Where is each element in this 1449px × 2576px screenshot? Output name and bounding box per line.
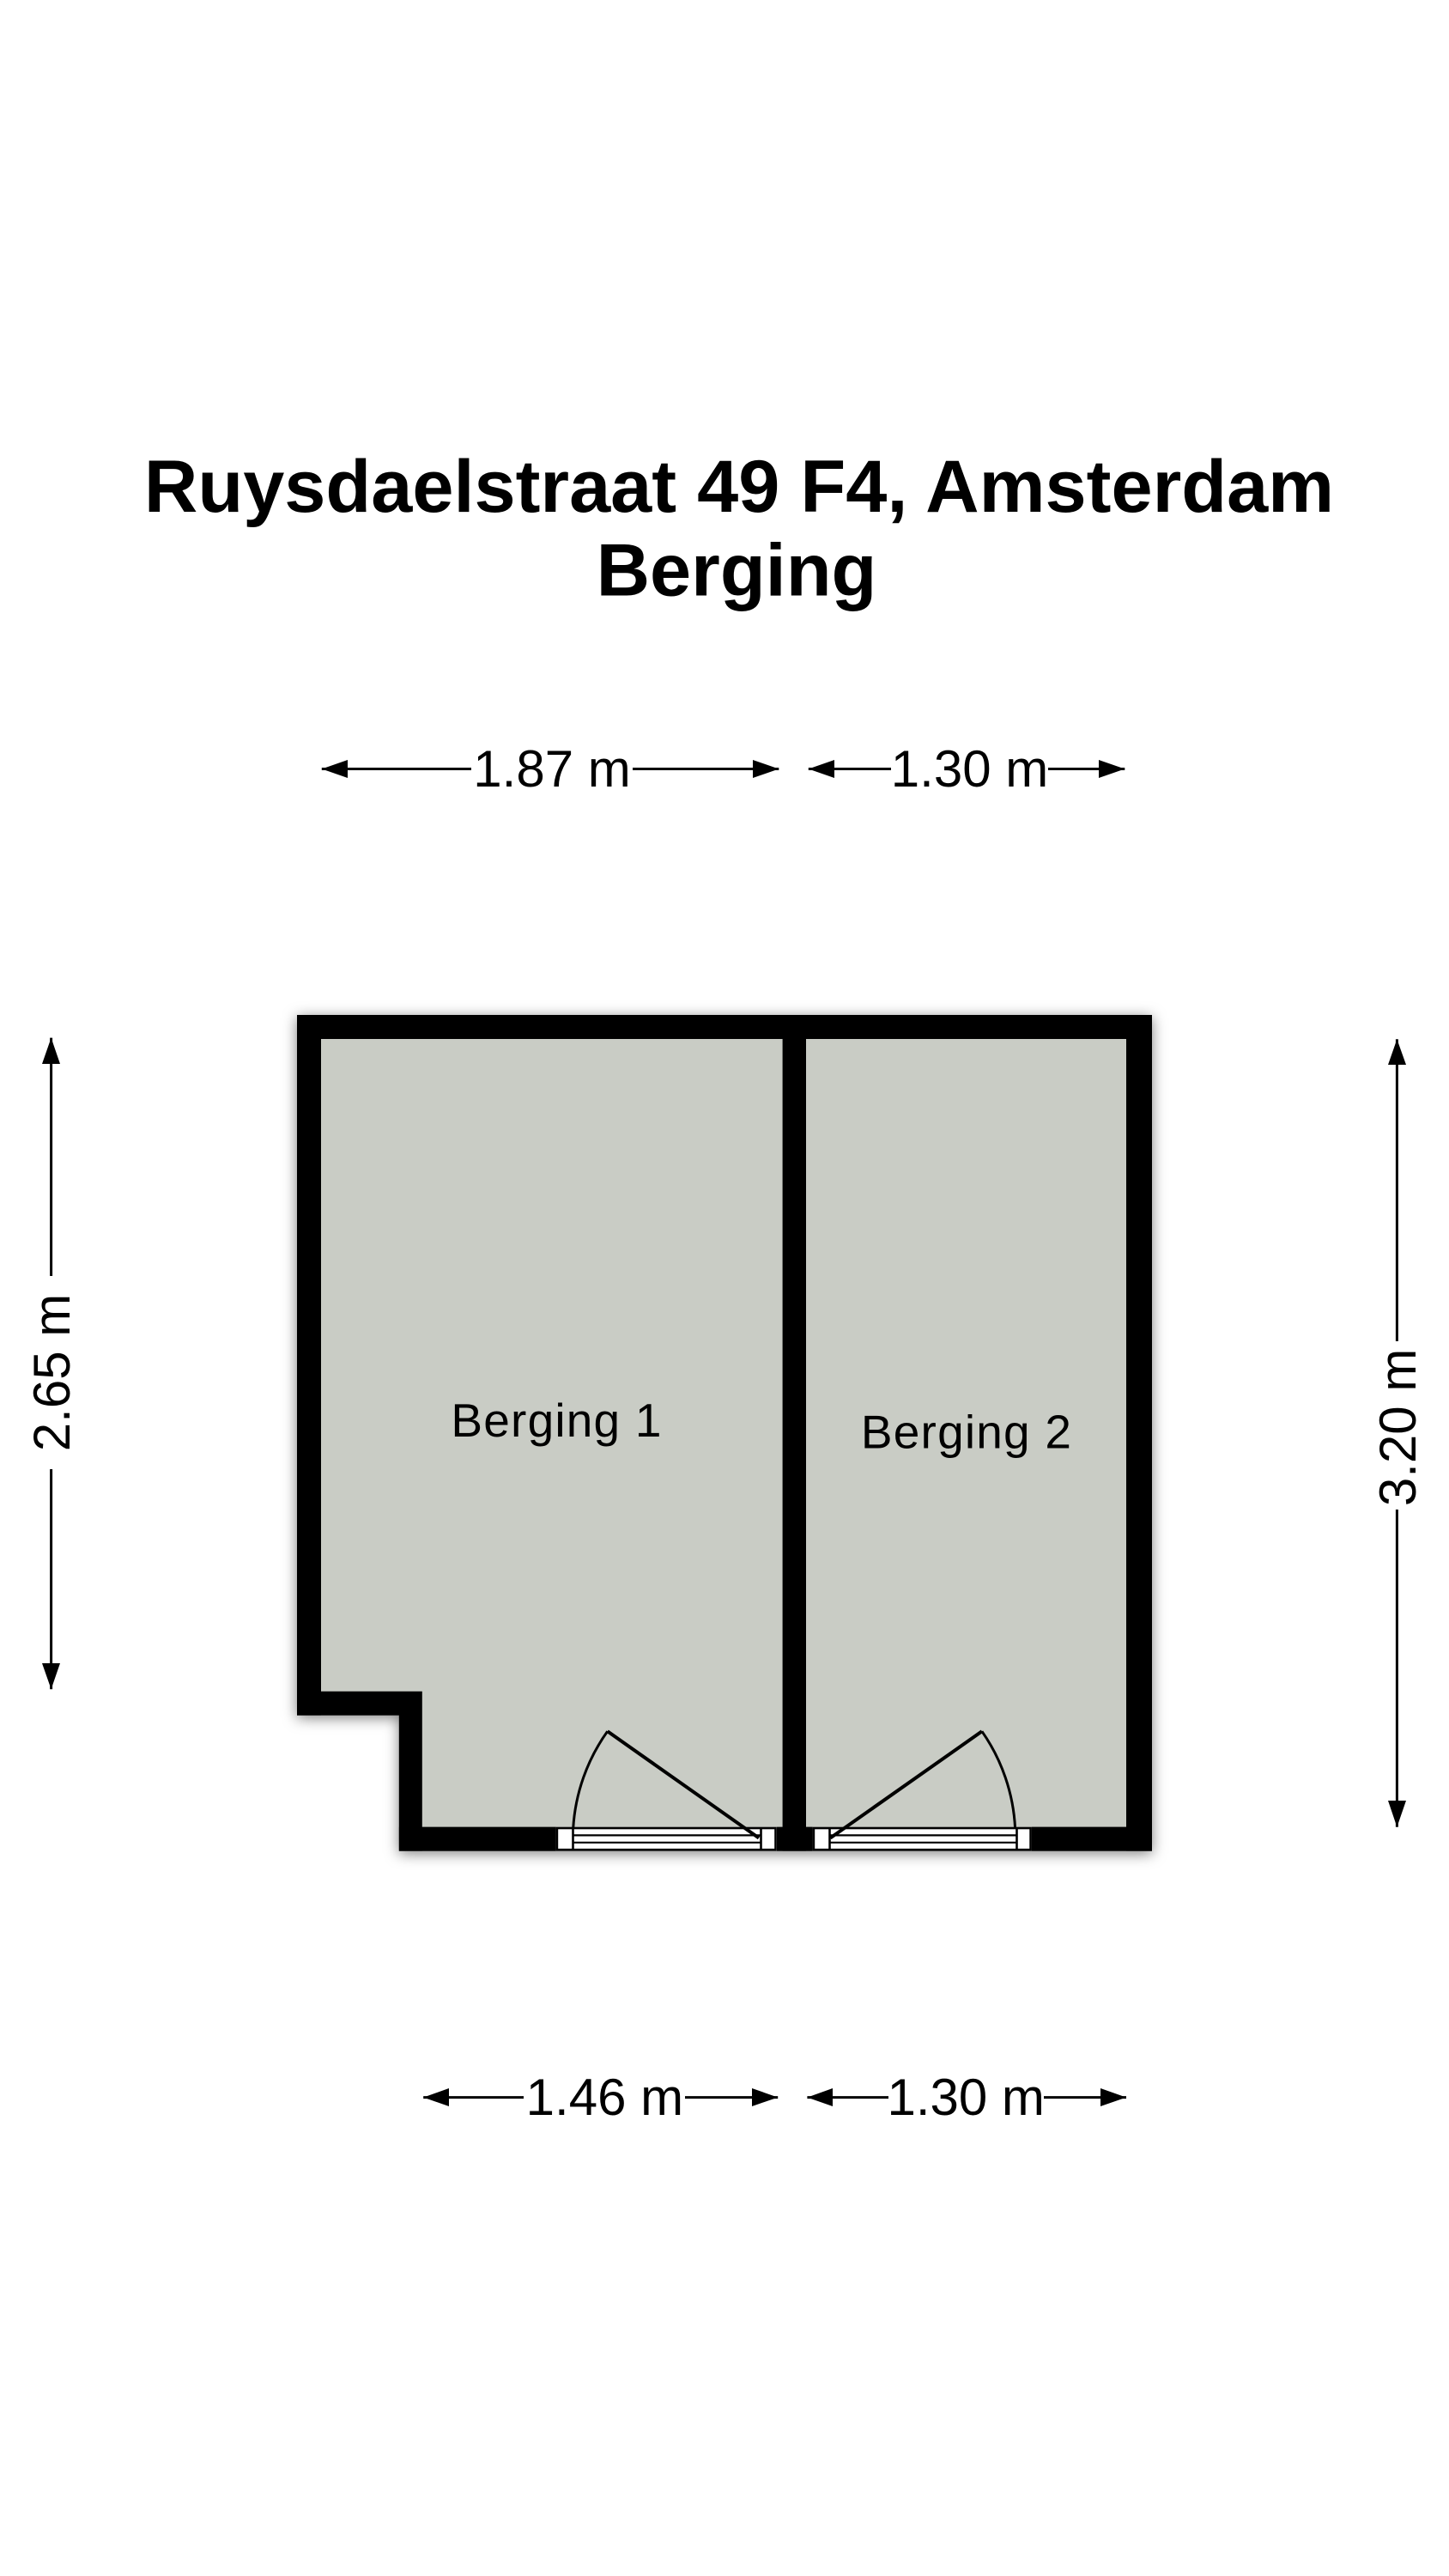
svg-text:Berging: Berging <box>597 530 877 612</box>
svg-text:Berging 2: Berging 2 <box>861 1405 1072 1458</box>
svg-text:1.87 m: 1.87 m <box>473 740 630 798</box>
svg-text:1.30 m: 1.30 m <box>891 740 1048 798</box>
svg-text:3.20 m: 3.20 m <box>1369 1349 1427 1506</box>
svg-text:2.65 m: 2.65 m <box>23 1294 81 1451</box>
svg-text:Berging 1: Berging 1 <box>451 1394 662 1447</box>
svg-text:1.46 m: 1.46 m <box>526 2069 683 2126</box>
svg-text:1.30 m: 1.30 m <box>887 2069 1044 2126</box>
svg-text:Ruysdaelstraat 49 F4, Amsterda: Ruysdaelstraat 49 F4, Amsterdam <box>144 446 1334 528</box>
